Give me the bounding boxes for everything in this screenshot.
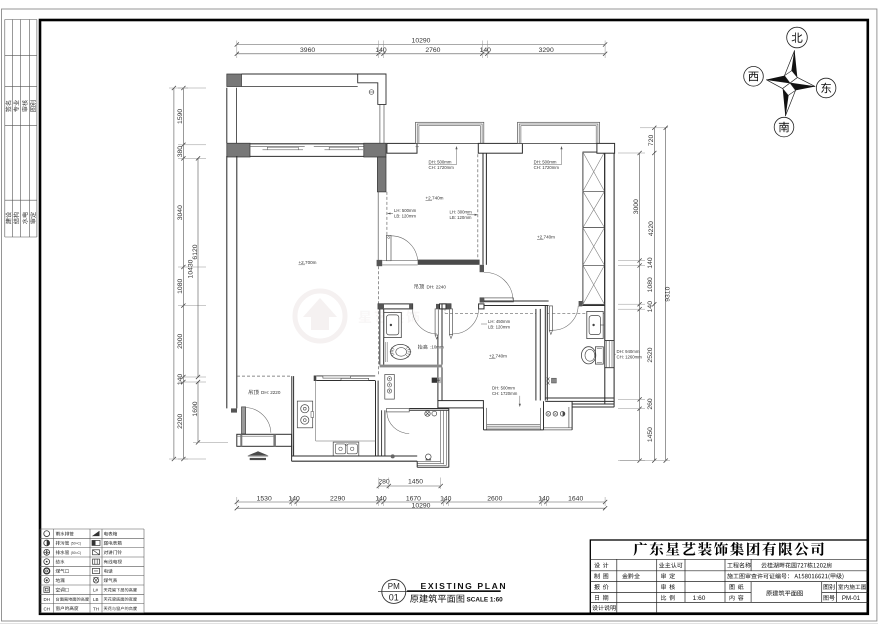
svg-text:1:60: 1:60 [693,595,706,602]
svg-text:+2.740m: +2.740m [537,235,555,240]
svg-text:PM: PM [388,582,400,591]
svg-text:CH: 1720mm: CH: 1720mm [492,391,518,396]
svg-text:2600: 2600 [487,495,502,502]
svg-text:380: 380 [177,146,184,158]
svg-text:+2.740m: +2.740m [489,354,507,359]
svg-text:DH: 500mm: DH: 500mm [534,159,557,164]
svg-text:CH: 1720mm: CH: 1720mm [429,165,455,170]
svg-text:1690: 1690 [192,401,199,416]
svg-text:1450: 1450 [408,479,423,486]
svg-text:1670: 1670 [406,495,421,502]
svg-text:DH: 500mm: DH: 500mm [429,159,452,164]
svg-text:CH: CH [44,606,51,611]
svg-text:1530: 1530 [257,495,272,502]
svg-text:2200: 2200 [177,414,184,429]
svg-text:+2.740m: +2.740m [426,196,444,201]
svg-text:EXISTING PLAN: EXISTING PLAN [421,581,508,591]
svg-text:1590: 1590 [177,109,184,124]
svg-text:DH: 2220: DH: 2220 [261,390,281,395]
svg-text::10mm: :10mm [430,345,444,350]
svg-text:2520: 2520 [647,347,654,362]
svg-text:140: 140 [375,47,387,54]
svg-text:SCALE 1:60: SCALE 1:60 [467,596,504,603]
svg-text:LH: 450mm: LH: 450mm [488,319,511,324]
svg-text:DH: 500mm: DH: 500mm [492,385,515,390]
svg-text:CH: 1720mm: CH: 1720mm [534,165,560,170]
svg-text:140: 140 [647,301,654,313]
svg-text:L#: L# [93,588,99,593]
svg-text:DH: DH [44,597,51,602]
svg-text:3000: 3000 [633,199,640,214]
svg-text:PM-01: PM-01 [842,595,861,602]
svg-text:LB: 120mm: LB: 120mm [488,324,510,329]
svg-text:10290: 10290 [412,502,431,509]
svg-text:140: 140 [480,47,492,54]
svg-text:1640: 1640 [568,495,583,502]
svg-text:TH: TH [93,606,99,611]
svg-text:10430: 10430 [188,259,195,278]
svg-text:140: 140 [440,495,452,502]
svg-text:140: 140 [647,257,654,269]
svg-text:LB: LB [93,597,99,602]
svg-text:(50≈C): (50≈C) [71,542,81,546]
svg-text:1080: 1080 [177,279,184,294]
svg-text:01: 01 [389,593,399,603]
svg-text:260: 260 [647,398,654,410]
svg-text:(50≈C): (50≈C) [71,551,81,555]
svg-text:3960: 3960 [300,47,315,54]
svg-text:LB: 120mm: LB: 120mm [394,214,416,219]
svg-text:LH: 500mm: LH: 500mm [394,208,417,213]
svg-text:DH: 940mm: DH: 940mm [617,349,640,354]
svg-text:9310: 9310 [664,286,671,301]
svg-text:2000: 2000 [177,334,184,349]
svg-text:280: 280 [378,479,390,486]
svg-text:1080: 1080 [647,277,654,292]
svg-text:+2.700m: +2.700m [299,260,317,265]
svg-text:140: 140 [538,495,550,502]
svg-text:6120: 6120 [192,244,199,259]
svg-text:2290: 2290 [330,495,345,502]
svg-text:720: 720 [648,135,655,147]
svg-text:4220: 4220 [648,221,655,236]
svg-text:LB: 120mm: LB: 120mm [450,215,472,220]
svg-text:140: 140 [177,374,184,386]
svg-text:1450: 1450 [647,427,654,442]
svg-text:140: 140 [288,495,300,502]
svg-text:DH: 2240: DH: 2240 [427,284,447,289]
svg-text:10290: 10290 [412,37,431,44]
svg-text:140: 140 [375,495,387,502]
svg-text:LH: 300mm: LH: 300mm [450,210,473,215]
svg-text:3040: 3040 [177,205,184,220]
svg-text:2760: 2760 [425,47,440,54]
svg-text:3290: 3290 [539,47,554,54]
svg-text:CH: 1260mm: CH: 1260mm [617,355,643,360]
